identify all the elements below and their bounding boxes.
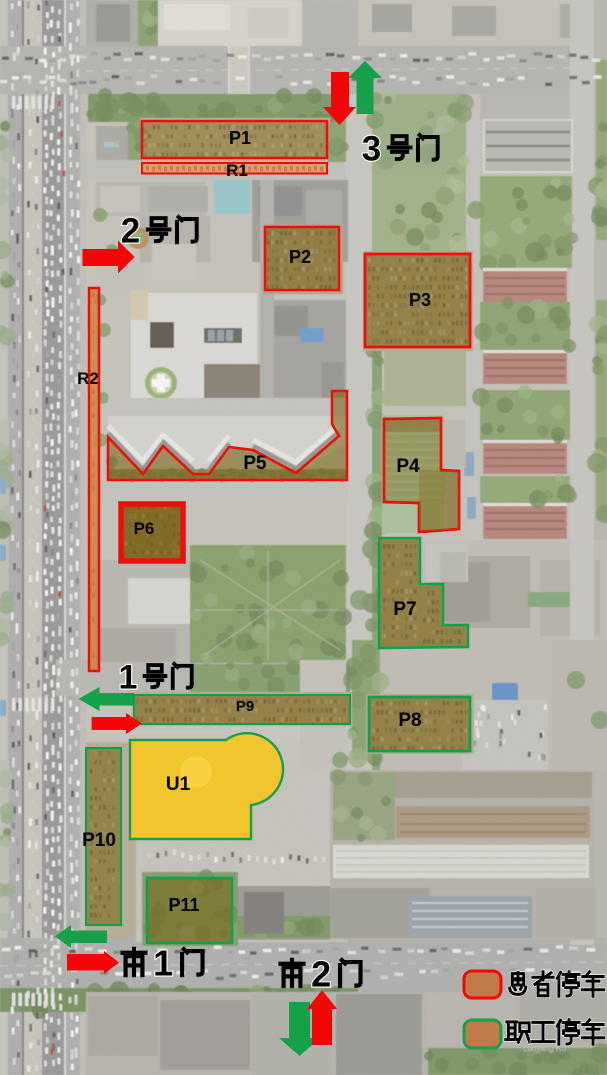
svg-text:P7: P7: [393, 599, 416, 620]
svg-text:P10: P10: [82, 830, 116, 851]
svg-text:U1: U1: [166, 774, 191, 795]
svg-text:P2: P2: [289, 247, 311, 267]
svg-text:1: 1: [119, 659, 138, 697]
svg-text:2: 2: [121, 212, 140, 251]
svg-text:P1: P1: [229, 128, 251, 148]
svg-text:P6: P6: [134, 519, 155, 538]
svg-text:P11: P11: [168, 895, 199, 915]
svg-text:P9: P9: [236, 698, 254, 715]
svg-text:P5: P5: [243, 453, 267, 474]
svg-text:2: 2: [311, 953, 331, 994]
svg-text:1: 1: [153, 942, 173, 983]
svg-text:R2: R2: [77, 369, 99, 388]
svg-text:P8: P8: [398, 710, 421, 731]
svg-text:R1: R1: [226, 161, 248, 180]
svg-text:P4: P4: [396, 456, 420, 477]
svg-text:3: 3: [362, 130, 381, 169]
svg-text:P3: P3: [409, 290, 431, 310]
